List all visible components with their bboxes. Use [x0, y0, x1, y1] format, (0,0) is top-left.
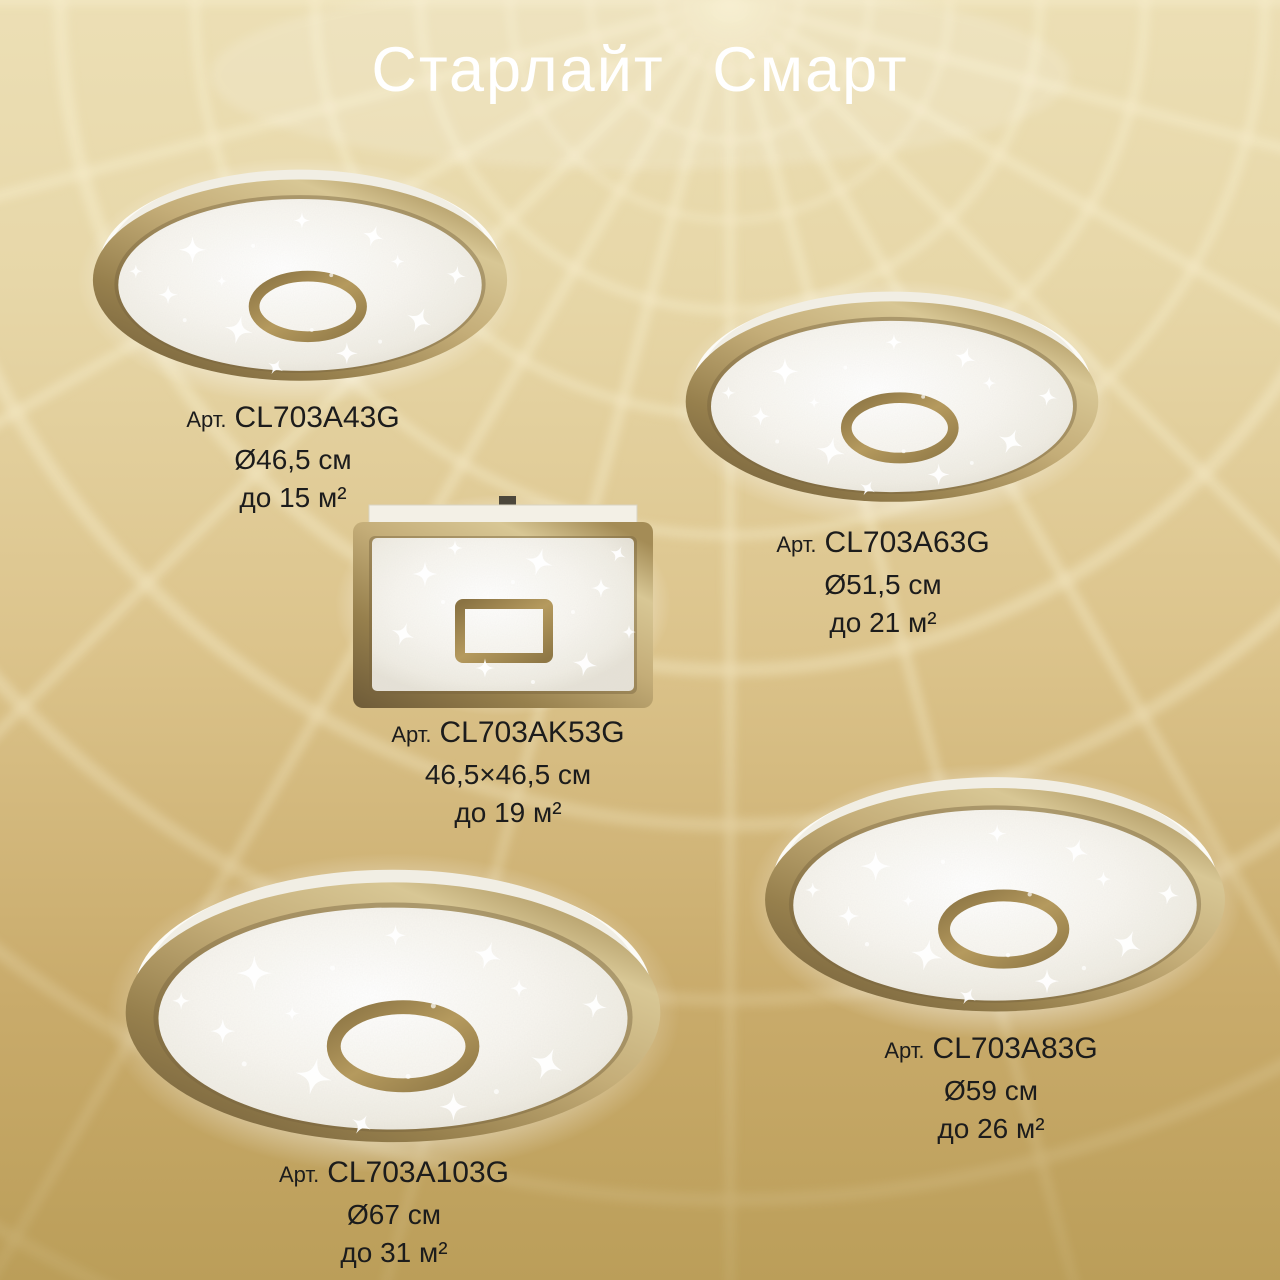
ceiling-lamp-round-photo: [668, 278, 1116, 531]
ceiling-lamp-round-photo: [75, 156, 525, 410]
product-label: Арт.CL703A103G Ø67 см до 31 м²: [174, 1156, 614, 1270]
product-article-line: Арт.CL703A83G: [771, 1032, 1211, 1068]
article-prefix: Арт.: [279, 1162, 319, 1187]
ceiling-lamp-square-photo: [328, 492, 678, 718]
product-area: до 31 м²: [174, 1236, 614, 1270]
product-size: Ø67 см: [174, 1198, 614, 1232]
article-number: CL703A63G: [825, 526, 990, 559]
article-number: CL703A83G: [933, 1032, 1098, 1065]
product-area: до 26 м²: [771, 1112, 1211, 1146]
article-number: CL703A43G: [235, 401, 400, 434]
catalog-page: Старлайт Смарт Арт.CL703A43G Ø46,5 см до…: [0, 0, 1280, 1280]
product-size: Ø59 см: [771, 1074, 1211, 1108]
product-article-line: Арт.CL703A43G: [73, 401, 513, 437]
product-size: Ø51,5 см: [663, 568, 1103, 602]
product-article-line: Арт.CL703A103G: [174, 1156, 614, 1192]
article-prefix: Арт.: [884, 1038, 924, 1063]
article-number: CL703AK53G: [440, 716, 625, 749]
product-article-line: Арт.CL703A63G: [663, 526, 1103, 562]
product-label: Арт.CL703A63G Ø51,5 см до 21 м²: [663, 526, 1103, 640]
product-size: 46,5×46,5 см: [288, 758, 728, 792]
product-area: до 21 м²: [663, 606, 1103, 640]
product-label: Арт.CL703AK53G 46,5×46,5 см до 19 м²: [288, 716, 728, 830]
ceiling-lamp-round-photo: [745, 762, 1245, 1044]
article-prefix: Арт.: [776, 532, 816, 557]
product-article-line: Арт.CL703AK53G: [288, 716, 728, 752]
product-area: до 19 м²: [288, 796, 728, 830]
article-prefix: Арт.: [391, 722, 431, 747]
page-title: Старлайт Смарт: [0, 34, 1280, 106]
article-number: CL703A103G: [327, 1156, 509, 1189]
ceiling-lamp-round-photo: [103, 852, 683, 1180]
article-prefix: Арт.: [186, 407, 226, 432]
product-size: Ø46,5 см: [73, 443, 513, 477]
product-label: Арт.CL703A83G Ø59 см до 26 м²: [771, 1032, 1211, 1146]
